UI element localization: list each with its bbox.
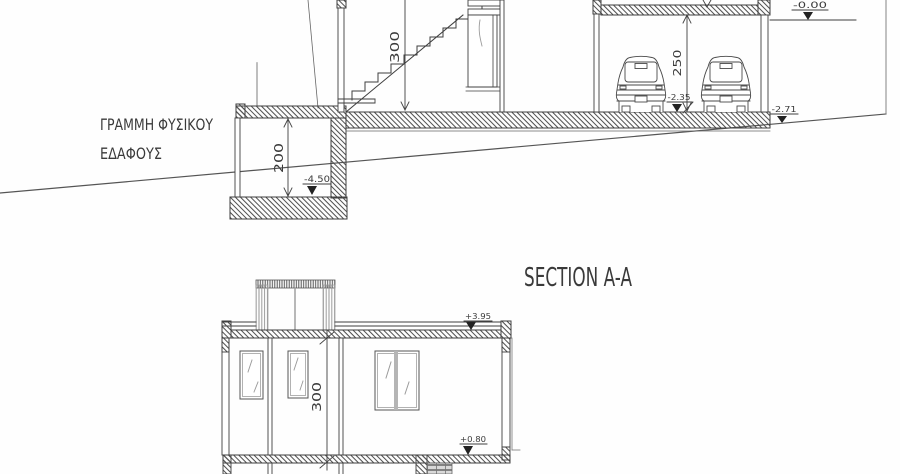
leader-line	[308, 0, 318, 108]
level-triangle-icon	[777, 116, 787, 123]
foundation-pier	[416, 455, 427, 474]
level-marker-garage-floor: -2.35	[667, 93, 693, 113]
section-drawing-svg: 200 -4.50	[0, 0, 900, 474]
left-wall	[338, 8, 344, 112]
ground-line-label: ΓΡΑΜΜΗ ΦΥΣΙΚΟΥ ΕΔΑΦΟΥΣ	[100, 115, 213, 163]
garage-ceiling-slab	[601, 5, 758, 15]
level-basement-label: -4.50	[304, 175, 330, 185]
architectural-section-drawing: 200 -4.50	[0, 0, 900, 474]
basement: 200 -4.50	[230, 63, 347, 219]
level-ground-right-label: -2.71	[772, 105, 797, 114]
garage-left-wall-head	[593, 0, 601, 14]
car-icon	[616, 56, 665, 112]
lower-right-wall	[502, 338, 510, 447]
level-marker-zero: -0.00	[770, 1, 856, 20]
stair-room: 300	[337, 0, 504, 112]
door	[466, 0, 501, 91]
ground-label-line2: ΕΔΑΦΟΥΣ	[100, 144, 162, 163]
lower-interior-wall-1	[268, 338, 272, 455]
roof-bulkhead	[256, 280, 335, 330]
car-icon	[701, 56, 750, 112]
dim-floor-label: 300	[310, 382, 324, 412]
level-floor-label: +0.80	[460, 435, 486, 444]
level-triangle-icon	[672, 104, 682, 112]
basement-floor-slab	[230, 197, 347, 219]
garage: 250	[593, 0, 856, 123]
lower-floor-left-block	[223, 455, 231, 474]
dim-basement-label: 200	[272, 143, 286, 173]
level-triangle-icon	[463, 446, 473, 455]
bulkhead-right-post	[323, 285, 335, 330]
bulkhead-left-post	[256, 285, 268, 330]
window	[288, 351, 308, 398]
lower-interior-wall-2	[339, 338, 343, 455]
level-marker-roof: +3.95	[464, 312, 492, 330]
lower-right-wall-head	[502, 338, 510, 352]
lower-section: +3.95 300	[222, 280, 520, 474]
garage-right-wall	[761, 15, 768, 112]
level-roof-label: +3.95	[465, 312, 491, 321]
basement-right-wall	[331, 118, 346, 198]
stair-room-right-wall	[500, 0, 504, 112]
wall-continuations	[268, 463, 343, 474]
section-title: SECTION A-A	[524, 263, 632, 293]
lower-left-wall	[222, 338, 229, 455]
dim-garage-label: 250	[671, 50, 684, 77]
basement-ceiling-left-block	[236, 104, 245, 118]
level-garage-floor-label: -2.35	[668, 93, 691, 102]
garage-left-wall	[594, 14, 599, 112]
level-triangle-icon	[803, 12, 813, 20]
level-marker-ground-right: -2.71	[771, 105, 798, 123]
level-zero-label: -0.00	[793, 1, 827, 11]
upper-section: 200 -4.50	[0, 0, 886, 219]
window	[240, 351, 263, 399]
ground-floor-slab	[346, 112, 770, 128]
garage-right-wall-head	[758, 0, 770, 15]
roof-slab	[231, 330, 501, 338]
lower-floor-slab	[223, 455, 510, 463]
basement-left-wall	[235, 118, 240, 197]
lower-left-wall-head	[222, 338, 229, 352]
left-wall-parapet-block	[337, 0, 346, 8]
level-marker-basement: -4.50	[303, 175, 331, 195]
brick-pier	[427, 463, 452, 474]
parapet-left-block	[222, 321, 231, 338]
basement-ceiling-slab	[236, 106, 346, 118]
level-triangle-icon	[307, 186, 317, 195]
dim-stairs-label: 300	[388, 31, 402, 63]
level-marker-lower-floor: +0.80	[460, 435, 487, 455]
double-window	[375, 351, 419, 410]
staircase-stringer	[346, 15, 463, 112]
parapet-right-block	[501, 321, 511, 338]
ground-label-line1: ΓΡΑΜΜΗ ΦΥΣΙΚΟΥ	[100, 115, 213, 134]
